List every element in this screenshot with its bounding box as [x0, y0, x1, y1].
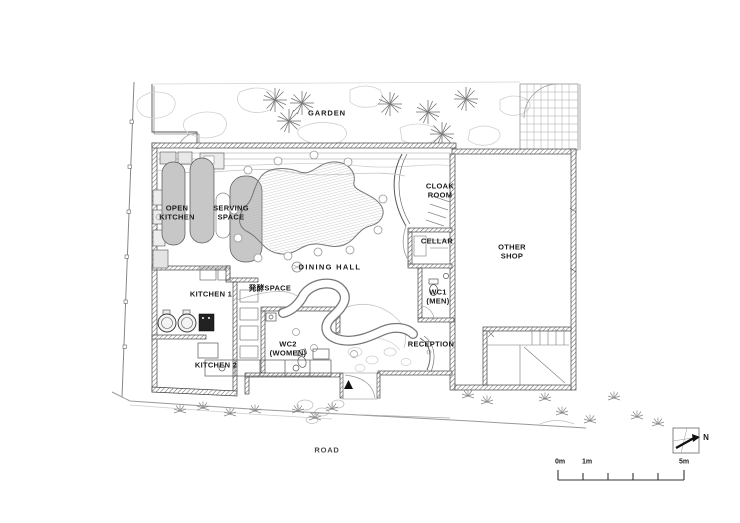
cellar-interior	[414, 236, 448, 256]
roadside-planting	[174, 390, 664, 427]
kitchen1-equipment	[158, 268, 230, 332]
site-boundary-lines	[112, 82, 586, 428]
floor-plan-canvas: GARDEN OPEN KITCHEN SERVING SPACE DINING…	[0, 0, 740, 523]
annex-stairs	[487, 208, 576, 385]
entrance-triangle-marker	[344, 380, 353, 389]
serpentine-bench	[283, 283, 413, 357]
open-kitchen-fixtures	[153, 152, 224, 268]
dining-hall-symbol-icon	[292, 262, 302, 272]
north-arrow-icon	[673, 428, 700, 453]
trellis-grid	[520, 84, 580, 150]
fermentation-shelves	[240, 290, 258, 358]
plan-linework	[0, 0, 740, 523]
scale-bar	[558, 470, 684, 480]
